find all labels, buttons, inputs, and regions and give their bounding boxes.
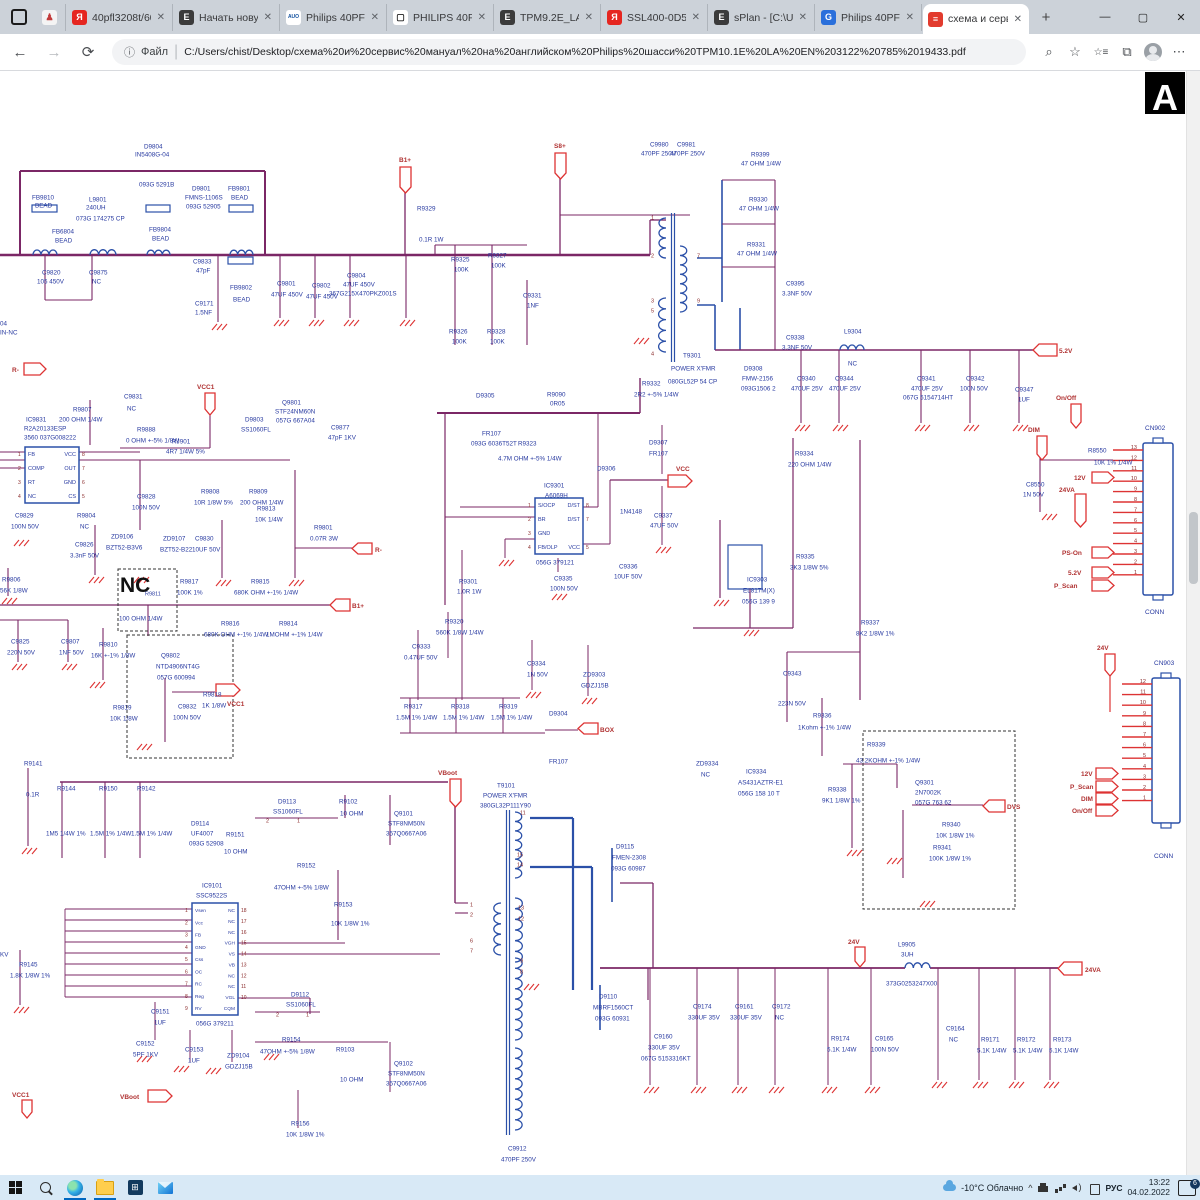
schematic-label: C9341 <box>917 375 936 382</box>
profile-avatar <box>1144 43 1162 61</box>
schematic-label: 1UF <box>154 1019 166 1026</box>
connector-pin-number: 5 <box>1143 753 1146 759</box>
volume-icon[interactable] <box>1071 1182 1083 1194</box>
ground-icon <box>732 1087 747 1093</box>
schematic-label: SSC9522S <box>196 892 227 899</box>
taskbar-explorer-icon[interactable] <box>90 1175 120 1200</box>
ic-pin-number: 3 <box>18 480 21 486</box>
profile-icon[interactable] <box>1140 39 1166 65</box>
schematic-label: 9K1 1/8W 1% <box>822 797 861 804</box>
schematic-label: IC9334 <box>746 768 767 775</box>
ic-pin-number: 4 <box>185 945 188 951</box>
schematic-label: C9335 <box>554 575 573 582</box>
schematic-label: 3K3 1/8W 5% <box>790 564 829 571</box>
schematic-label: 1UF <box>1018 396 1030 403</box>
schematic-label: R9816 <box>221 620 240 627</box>
schematic-label: Q9301 <box>915 779 934 786</box>
net-flag-icon <box>578 723 598 734</box>
schematic-label: R9337 <box>861 619 880 626</box>
ground-icon <box>822 1087 837 1093</box>
schematic-label: R9810 <box>99 641 118 648</box>
ground-icon <box>865 1087 880 1093</box>
schematic-label: 1 <box>297 819 300 825</box>
schematic-label: 10K 1/8W 1% <box>331 920 370 927</box>
tab-title: 40pfl3208t/60 схема <box>92 12 151 24</box>
schematic-label: 7 <box>470 949 473 955</box>
schematic-label: C9340 <box>797 375 816 382</box>
schematic-label: 330UF 35V <box>730 1014 763 1021</box>
schematic-label: 100K 1/8W 1% <box>929 855 971 862</box>
schematic-label: 067G 5153316KT <box>641 1055 691 1062</box>
schematic-label: R9817 <box>180 578 199 585</box>
schematic-label: 10K 1/8W 1% <box>286 1131 325 1138</box>
ground-icon <box>89 577 104 583</box>
net-flag-icon <box>450 779 461 807</box>
schematic-label: 0R05 <box>550 400 566 407</box>
yandex-favicon: Я <box>72 10 87 25</box>
schematic-label: R9334 <box>795 450 814 457</box>
search-icon[interactable] <box>30 1175 60 1200</box>
weather-text[interactable]: -10°C Облачно <box>961 1183 1023 1193</box>
schematic-label: STF8NM50N <box>388 820 425 827</box>
new-tab-button[interactable]: + <box>1034 5 1058 29</box>
connector-name: CN902 <box>1145 425 1166 432</box>
tab-9[interactable]: ≡схема и сервис ману✕ <box>923 4 1029 34</box>
schematic-label: 1N4148 <box>620 508 643 515</box>
tab-title: Philips 40PFL3108T/6 <box>841 12 900 24</box>
schematic-label: 10K 1/8W <box>110 715 138 722</box>
schematic-label: 10K 1% 1/4W <box>1094 459 1133 466</box>
tab-close-icon[interactable]: ✕ <box>583 12 595 23</box>
schematic-label: C9801 <box>277 280 296 287</box>
schematic-label: 1.5M 1% 1/4W <box>396 714 437 721</box>
schematic-label: IC9301 <box>544 482 565 489</box>
schematic-label: R9814 <box>279 620 298 627</box>
ground-icon <box>62 664 77 670</box>
schematic-label: 1Kohm +-1% 1/4W <box>798 724 851 731</box>
component-outline <box>146 205 170 212</box>
schematic-label: 1N 50V <box>527 671 549 678</box>
tab-2[interactable]: EНачать новую тему✕ <box>174 4 280 31</box>
tab-close-icon[interactable]: ✕ <box>476 12 488 23</box>
ic-pin-label: Vsen <box>195 908 206 914</box>
schematic-label: R9399 <box>751 151 770 158</box>
ground-icon <box>1042 514 1057 520</box>
ic-pin-label: OC <box>195 969 203 975</box>
schematic-label: C9151 <box>151 1008 170 1015</box>
schematic-label: C9344 <box>835 375 854 382</box>
ic-pin-number: 5 <box>586 545 589 551</box>
schematic-label: R9172 <box>1017 1036 1036 1043</box>
tab-actions-icon[interactable] <box>6 4 32 30</box>
schematic-label: 10 OHM <box>340 1076 363 1083</box>
schematic-label: NC <box>80 523 90 530</box>
ic-pin-number: 8 <box>586 503 589 509</box>
schematic-label: 04 <box>0 320 8 327</box>
ground-icon <box>769 1087 784 1093</box>
ic-pin-number: 8 <box>185 994 188 1000</box>
schematic-label: 3560 037G008222 <box>24 434 77 441</box>
favorite-add-icon[interactable]: ☆ <box>1062 39 1088 65</box>
edark-favicon: E <box>179 10 194 25</box>
schematic-label: ZD9334 <box>696 760 719 767</box>
schematic-label: C9912 <box>508 1145 527 1152</box>
tab-1[interactable]: Я40pfl3208t/60 схема✕ <box>67 4 173 31</box>
ic-pin-number: 4 <box>528 545 531 551</box>
ic-pin-label: OUT <box>64 466 76 472</box>
start-button[interactable] <box>0 1175 30 1200</box>
schematic-label: 093G1506 2 <box>741 385 776 392</box>
connector-pin-number: 2 <box>1134 559 1137 565</box>
connector-CN902 <box>1143 443 1173 595</box>
taskbar-edge-icon[interactable] <box>60 1175 90 1200</box>
schematic-label: 1K 1/8W <box>202 702 226 709</box>
schematic-label: 056G 379121 <box>536 559 575 566</box>
schematic-label: 680K OHM +-1% 1/4W <box>234 589 298 596</box>
net-flag-icon <box>1033 344 1057 356</box>
maximize-button[interactable]: ▢ <box>1124 0 1162 34</box>
connector-conn-label: CONN <box>1145 609 1164 616</box>
collections-icon[interactable]: ⧉ <box>1114 39 1140 65</box>
language-indicator[interactable]: РУС <box>1105 1183 1122 1193</box>
schematic-label: R9156 <box>291 1120 310 1127</box>
tab-title: sPlan - [C:\Users\TEK <box>734 12 793 24</box>
person-favicon: ♟ <box>42 10 57 25</box>
schematic-drawing: B1+S8+5.2VOn/OffDIM12V24VAPS-On5.2VP_Sca… <box>0 70 1200 1175</box>
connector-pin-number: 8 <box>1134 497 1137 503</box>
net-flag-label: DIM <box>1028 427 1040 434</box>
schematic-label: SS1060FL <box>273 808 303 815</box>
clock[interactable]: 13:2204.02.2022 <box>1127 1178 1170 1198</box>
tab-7[interactable]: EsPlan - [C:\Users\TEK✕ <box>709 4 815 31</box>
pdf-section-letter: A <box>1145 72 1185 114</box>
net-flag-icon <box>352 543 372 554</box>
net-flag-label: VBoot <box>120 1094 140 1101</box>
schematic-label: C9171 <box>195 300 214 307</box>
schematic-label: R9154 <box>282 1036 301 1043</box>
connector-pin-number: 6 <box>1134 518 1137 524</box>
schematic-label: 470PF 250V <box>670 150 706 157</box>
weather-icon[interactable] <box>943 1184 956 1191</box>
tab-close-icon[interactable]: ✕ <box>797 12 809 23</box>
net-flag-icon <box>1075 494 1086 527</box>
connector-pin-number: 1 <box>1134 570 1137 576</box>
favorites-bar-icon[interactable]: ☆≡ <box>1088 39 1114 65</box>
tab-4[interactable]: ▢PHILIPS 40PFL3208T✕ <box>388 4 494 31</box>
schematic-label: 8 <box>520 970 523 976</box>
connector-pin-number: 8 <box>1143 721 1146 727</box>
schematic-label: 105 450V <box>37 278 65 285</box>
schematic-label: 47UF 450V <box>343 281 376 288</box>
schematic-label: 100N 50V <box>173 714 202 721</box>
schematic-label: 1NF <box>527 302 539 309</box>
net-flag-label: S8+ <box>554 143 566 150</box>
net-flag-label: VBoot <box>438 770 458 777</box>
scrollbar-track[interactable] <box>1186 70 1200 1175</box>
schematic-label: FR107 <box>649 450 668 457</box>
ground-icon <box>964 425 979 431</box>
schematic-label: 470UF 25V <box>911 385 944 392</box>
ic-pin-label: D/ST <box>567 517 580 523</box>
component-outline <box>229 205 253 212</box>
schematic-label: C9343 <box>783 670 802 677</box>
schematic-label: C9333 <box>412 643 431 650</box>
schematic-label: R9319 <box>499 703 518 710</box>
taskbar-mail-icon[interactable] <box>150 1175 180 1200</box>
schematic-label: NC <box>127 405 137 412</box>
back-button[interactable]: ← <box>6 38 34 66</box>
close-button[interactable]: ✕ <box>1162 0 1200 34</box>
schematic-label: 2 <box>651 254 654 260</box>
tab-close-icon[interactable]: ✕ <box>1012 14 1024 25</box>
schematic-label: C9831 <box>124 393 143 400</box>
schematic-label: 1.0R 1W <box>457 588 482 595</box>
net-flag-icon <box>855 947 865 967</box>
connector-pin-number: 2 <box>1143 785 1146 791</box>
schematic-label: 080GL52P 54 CP <box>668 378 717 385</box>
schematic-label: C9331 <box>523 292 542 299</box>
tab-5[interactable]: ETPM9.2E_LA_312278✕ <box>495 4 601 31</box>
ic-pin-label: VGL <box>225 995 235 1001</box>
schematic-label: D9110 <box>599 993 618 1000</box>
schematic-label: 680K OHM +-1% 1/4W <box>204 631 268 638</box>
schematic-label: 47OHM +-5% 1/8W <box>260 1048 315 1055</box>
schematic-label: R9819 <box>113 704 132 711</box>
schematic-label: R9301 <box>459 578 478 585</box>
net-flag-icon <box>1096 768 1118 779</box>
schematic-label: 1 <box>306 1013 309 1019</box>
ic-pin-number: 9 <box>185 1006 188 1012</box>
schematic-label: FR107 <box>549 758 568 765</box>
net-flag-icon <box>555 153 566 179</box>
schematic-label: C9828 <box>137 493 156 500</box>
schematic-label: 093G 52905 <box>186 203 221 210</box>
schematic-label: C9334 <box>527 660 546 667</box>
printer-icon[interactable] <box>1037 1182 1049 1194</box>
schematic-label: R9325 <box>451 256 470 263</box>
coil <box>494 903 501 955</box>
ground-icon <box>1009 1082 1024 1088</box>
pinned-tab[interactable]: ♟ <box>34 4 66 31</box>
schematic-label: 47UF 450V <box>271 291 304 298</box>
net-flag-label: 12V <box>1074 475 1086 482</box>
schematic-label: 1.5M 1% 1/4W <box>90 830 131 837</box>
schematic-label: 56K 1/8W <box>0 587 28 594</box>
url-separator: | <box>174 43 178 61</box>
schematic-label: C9981 <box>677 141 696 148</box>
schematic-label: R9317 <box>404 703 423 710</box>
ground-icon <box>216 580 231 586</box>
ground-icon <box>309 320 324 326</box>
ground-icon <box>400 320 415 326</box>
scrollbar-thumb[interactable] <box>1189 512 1198 584</box>
schematic-label: R9151 <box>226 831 245 838</box>
tab-close-icon[interactable]: ✕ <box>369 12 381 23</box>
schematic-label: R9102 <box>339 798 358 805</box>
schematic-label: 093G 60987 <box>611 865 646 872</box>
connector-tab <box>1161 673 1171 678</box>
schematic-label: 15 <box>517 853 523 859</box>
schematic-label: 9 <box>520 959 523 965</box>
ic-pin-number: 16 <box>241 930 247 936</box>
net-flag-label: 5.2V <box>1068 570 1082 577</box>
address-bar[interactable]: ⓘ Файл | C:/Users/chist/Desktop/схема%20… <box>112 39 1026 65</box>
net-flag-label: 24V <box>848 939 860 946</box>
schematic-label: R9801 <box>314 524 333 531</box>
schematic-label: 1.5M 1% 1/4W <box>131 830 172 837</box>
schematic-label: 100N 50V <box>11 523 40 530</box>
ground-icon <box>915 425 930 431</box>
ground-icon <box>887 858 902 864</box>
schematic-label: 200 OHM 1/4W <box>59 416 102 423</box>
schematic-label: R9340 <box>942 821 961 828</box>
net-flag-label: B1+ <box>399 157 411 164</box>
schematic-label: 1 <box>651 216 654 222</box>
more-icon[interactable]: ⋯ <box>1166 39 1192 65</box>
ic-pin-number: 13 <box>241 962 247 968</box>
ic-pin-number: 11 <box>241 984 246 990</box>
schematic-label: C9347 <box>1015 386 1034 393</box>
ic-pin-number: 1 <box>18 452 21 458</box>
ic-pin-label: Css <box>195 957 204 963</box>
schematic-label: 47OHM +-5% 1/8W <box>274 884 329 891</box>
monitor-favicon: ▢ <box>393 10 408 25</box>
ground-icon <box>644 1087 659 1093</box>
connector-conn-label: CONN <box>1154 853 1173 860</box>
connector-pin-number: 13 <box>1131 445 1137 451</box>
tab-3[interactable]: AUOPhilips 40PFL3208/60✕ <box>281 4 387 31</box>
tab-title: Начать новую тему <box>199 12 258 24</box>
schematic-label: 8K2 1/8W 1% <box>856 630 895 637</box>
schematic-label: R9332 <box>642 380 661 387</box>
ic-pin-number: 3 <box>185 933 188 939</box>
schematic-label: C9338 <box>786 334 805 341</box>
ground-icon <box>920 901 935 907</box>
schematic-label: 100N 50V <box>550 585 579 592</box>
schematic-label: R9150 <box>99 785 118 792</box>
network-icon[interactable] <box>1054 1182 1066 1194</box>
toolbar-icons: ⌕☆☆≡⧉⋯ <box>1036 39 1192 65</box>
ic-pin-label: FB <box>195 933 201 939</box>
ic-pin-label: VS <box>229 952 235 958</box>
page-info-icon[interactable]: ⓘ <box>124 44 135 60</box>
coil <box>659 218 666 258</box>
tab-title: SSL400-0D5A схема <box>627 12 686 24</box>
ic-pin-label: RT <box>28 480 36 486</box>
schematic-label: 2R2 +-5% 1/4W <box>634 391 679 398</box>
zoom-icon[interactable]: ⌕ <box>1036 39 1062 65</box>
tab-6[interactable]: ЯSSL400-0D5A схема✕ <box>602 4 708 31</box>
ic-pin-number: 3 <box>528 531 531 537</box>
schematic-label: 100 OHM 1/4W <box>119 615 162 622</box>
hidden-icons-chevron[interactable]: ^ <box>1028 1183 1032 1193</box>
schematic-label: R9809 <box>249 488 268 495</box>
tablet-icon[interactable] <box>1088 1182 1100 1194</box>
ground-icon <box>795 425 810 431</box>
schematic-label: GDZJ15B <box>225 1063 253 1070</box>
net-flag-label: R- <box>375 547 382 554</box>
schematic-label: C9829 <box>15 512 34 519</box>
taskbar-store-icon[interactable]: ⊞ <box>120 1175 150 1200</box>
browser-window: ♟Я40pfl3208t/60 схема✕EНачать новую тему… <box>0 0 1200 1200</box>
ic-pin-number: 2 <box>18 466 21 472</box>
schematic-label: 12 <box>518 917 524 923</box>
schematic-label: 14 <box>517 863 523 869</box>
schematic-label: R9144 <box>57 785 76 792</box>
schematic-label: C9152 <box>136 1040 155 1047</box>
schematic-label: T9101 <box>497 782 515 789</box>
forward-button[interactable]: → <box>40 38 68 66</box>
schematic-label: D9112 <box>291 991 310 998</box>
schematic-label: 10R 1/8W 5% <box>194 499 233 506</box>
schematic-label: 056G 379211 <box>196 1020 234 1027</box>
schematic-label: 1.5M 1% 1/4W <box>491 714 532 721</box>
ground-icon <box>973 1082 988 1088</box>
schematic-label: 057G 667A04 <box>276 417 315 424</box>
ground-icon <box>14 540 29 546</box>
schematic-label: C9804 <box>347 272 366 279</box>
minimize-button[interactable]: — <box>1086 0 1124 34</box>
net-flag-icon <box>205 393 215 415</box>
edark-favicon: E <box>714 10 729 25</box>
schematic-label: R9323 <box>518 440 537 447</box>
schematic-label: 100K <box>490 338 506 345</box>
net-flag-icon <box>668 475 692 487</box>
tab-close-icon[interactable]: ✕ <box>690 12 702 23</box>
schematic-label: 5.1K 1/4W <box>827 1046 856 1053</box>
schematic-label: EL817M(X) <box>743 587 775 594</box>
schematic-label: C9875 <box>89 269 108 276</box>
schematic-label: R9336 <box>813 712 832 719</box>
inductor-coil <box>905 963 930 968</box>
schematic-label: IN-NC <box>0 329 18 336</box>
ic-pin-number: 6 <box>185 969 188 975</box>
schematic-label: C9802 <box>312 282 331 289</box>
schematic-label: R9318 <box>451 703 470 710</box>
notification-icon[interactable]: 6 <box>1178 1180 1196 1196</box>
tab-8[interactable]: GPhilips 40PFL3108T/6✕ <box>816 4 922 31</box>
tab-close-icon[interactable]: ✕ <box>155 12 167 23</box>
schematic-label: BEAD <box>233 296 251 303</box>
schematic-label: 0.1R <box>26 791 40 798</box>
schematic-label: A6069H <box>545 492 568 499</box>
ic-pin-label: Vcc <box>195 920 204 926</box>
schematic-label: R9145 <box>19 961 38 968</box>
tab-close-icon[interactable]: ✕ <box>904 12 916 23</box>
schematic-label: D9304 <box>549 710 568 717</box>
schematic-label: 43.2KOHM +-1% 1/4W <box>856 757 920 764</box>
connector-tab <box>1161 823 1171 828</box>
schematic-label: 093G 60931 <box>595 1015 630 1022</box>
schematic-label: C9165 <box>875 1035 894 1042</box>
schematic-label: R9141 <box>24 760 43 767</box>
schematic-label: 47 OHM 1/4W <box>737 250 777 257</box>
schematic-label: POWER X'FMR <box>483 792 528 799</box>
schematic-label: D9804 <box>144 143 163 150</box>
ic-pin-number: 6 <box>82 480 85 486</box>
navigation-bar: ← → ⟳ ⓘ Файл | C:/Users/chist/Desktop/сх… <box>0 34 1200 71</box>
tab-close-icon[interactable]: ✕ <box>262 12 274 23</box>
schematic-label: 330UF 35V <box>688 1014 721 1021</box>
schematic-label: 10K 1/8W 1% <box>936 832 975 839</box>
ground-icon <box>12 664 27 670</box>
schematic-label: NTD4906NT4G <box>156 663 200 670</box>
ic-pin-label: NC <box>228 930 235 936</box>
schematic-label: FB9802 <box>230 284 253 291</box>
schematic-label: R9811 <box>145 592 161 598</box>
refresh-button[interactable]: ⟳ <box>74 38 102 66</box>
schematic-label: 6 <box>470 939 473 945</box>
